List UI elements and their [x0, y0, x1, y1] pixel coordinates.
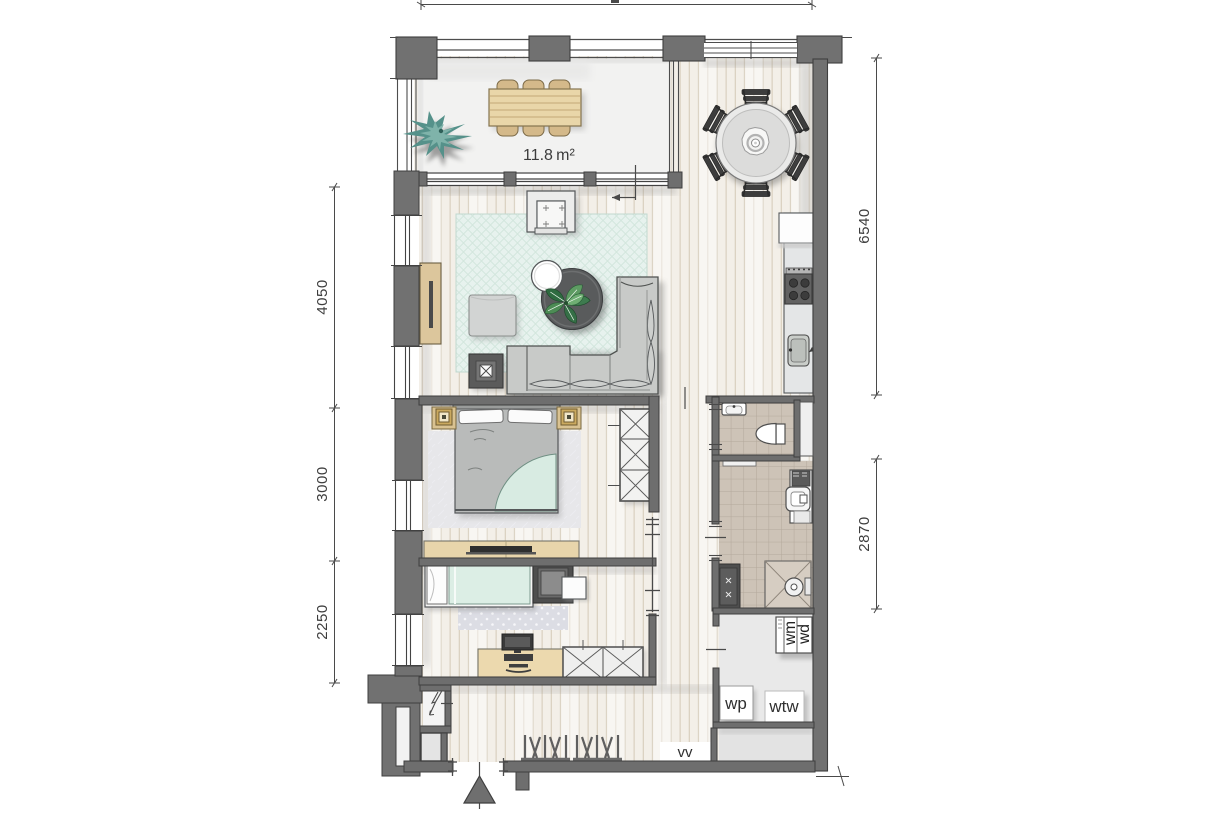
svg-text:3000: 3000 [314, 466, 331, 501]
svg-text:11.8 m²: 11.8 m² [523, 147, 575, 164]
svg-text:wtw: wtw [768, 697, 799, 716]
svg-text:vv: vv [678, 744, 694, 761]
svg-text:2870: 2870 [856, 516, 873, 551]
svg-text:wp: wp [724, 694, 747, 713]
svg-text:6540: 6540 [856, 208, 873, 243]
svg-text:4050: 4050 [314, 279, 331, 314]
svg-text:wd: wd [796, 624, 813, 645]
svg-text:2250: 2250 [314, 604, 331, 639]
